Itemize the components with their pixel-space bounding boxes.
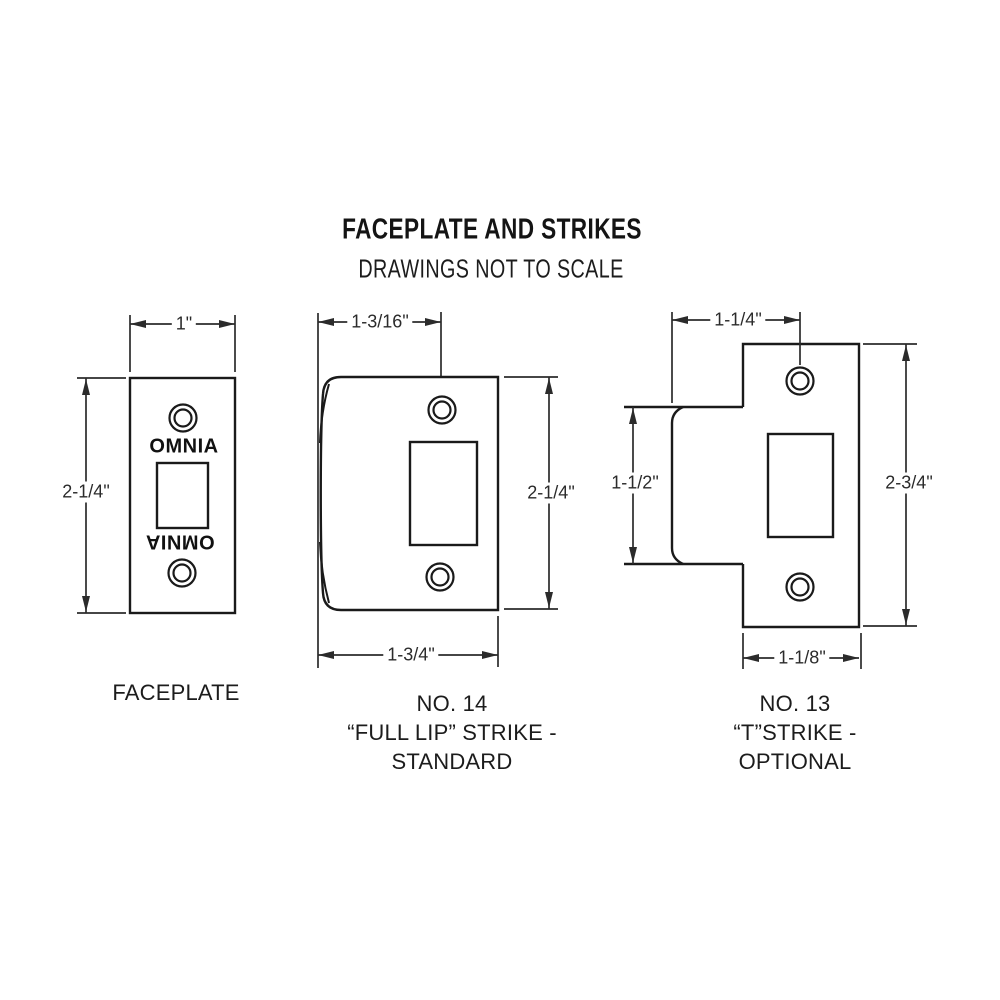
full-lip-strike-label-line3: STANDARD (347, 747, 557, 776)
arrowhead-icon (545, 378, 553, 394)
faceplate-label: FACEPLATE (112, 678, 239, 707)
lip-curve (672, 407, 683, 564)
arrowhead-icon (629, 408, 637, 424)
arrowhead-icon (318, 651, 334, 659)
arrowhead-icon (318, 318, 334, 326)
faceplate-height-dimension: 2-1/4" (58, 482, 113, 503)
screw-hole-inner (792, 579, 809, 596)
t-strike-label-line2: “T”STRIKE - (733, 718, 856, 747)
t-strike-width-dimension: 1-1/8" (774, 648, 829, 669)
arrowhead-icon (784, 316, 800, 324)
t-strike-lip-height-dimension: 1-1/2" (607, 473, 662, 494)
full-lip-strike-drawing (318, 312, 558, 668)
t-strike-hole-offset-dimension: 1-1/4" (710, 310, 765, 331)
arrowhead-icon (545, 592, 553, 608)
arrowhead-icon (82, 379, 90, 395)
t-strike-label-line3: OPTIONAL (733, 747, 856, 776)
screw-hole-inner (434, 402, 451, 419)
t-strike-label: NO. 13 “T”STRIKE - OPTIONAL (733, 689, 856, 776)
full-lip-strike-label-line1: NO. 14 (347, 689, 557, 718)
full-lip-width-dimension: 1-3/4" (383, 645, 438, 666)
arrowhead-icon (130, 320, 146, 328)
full-lip-strike-label-line2: “FULL LIP” STRIKE - (347, 718, 557, 747)
arrowhead-icon (82, 596, 90, 612)
page-subtitle: DRAWINGS NOT TO SCALE (358, 254, 623, 285)
faceplate-engraving-top: OMNIA (149, 436, 218, 459)
faceplate-width-dimension: 1" (172, 314, 196, 335)
arrowhead-icon (629, 547, 637, 563)
screw-hole-inner (175, 410, 192, 427)
drawing-sheet: FACEPLATE AND STRIKES DRAWINGS NOT TO SC… (0, 0, 1000, 1000)
arrowhead-icon (672, 316, 688, 324)
faceplate-engraving-bottom: OMNIA (145, 530, 214, 553)
drawing-canvas (0, 0, 1000, 1000)
screw-hole-inner (174, 565, 191, 582)
screw-hole-inner (432, 569, 449, 586)
arrowhead-icon (425, 318, 441, 326)
arrowhead-icon (843, 654, 859, 662)
arrowhead-icon (902, 345, 910, 361)
screw-hole-inner (792, 373, 809, 390)
t-strike-height-dimension: 2-3/4" (881, 473, 936, 494)
full-lip-hole-offset-dimension: 1-3/16" (347, 312, 412, 333)
faceplate-drawing (77, 315, 235, 613)
page-title: FACEPLATE AND STRIKES (342, 214, 642, 247)
t-strike-drawing (624, 312, 917, 669)
arrowhead-icon (482, 651, 498, 659)
arrowhead-icon (219, 320, 235, 328)
arrowhead-icon (902, 609, 910, 625)
latch-opening (768, 434, 833, 537)
full-lip-height-dimension: 2-1/4" (523, 483, 578, 504)
arrowhead-icon (743, 654, 759, 662)
t-strike-label-line1: NO. 13 (733, 689, 856, 718)
full-lip-strike-label: NO. 14 “FULL LIP” STRIKE - STANDARD (347, 689, 557, 776)
